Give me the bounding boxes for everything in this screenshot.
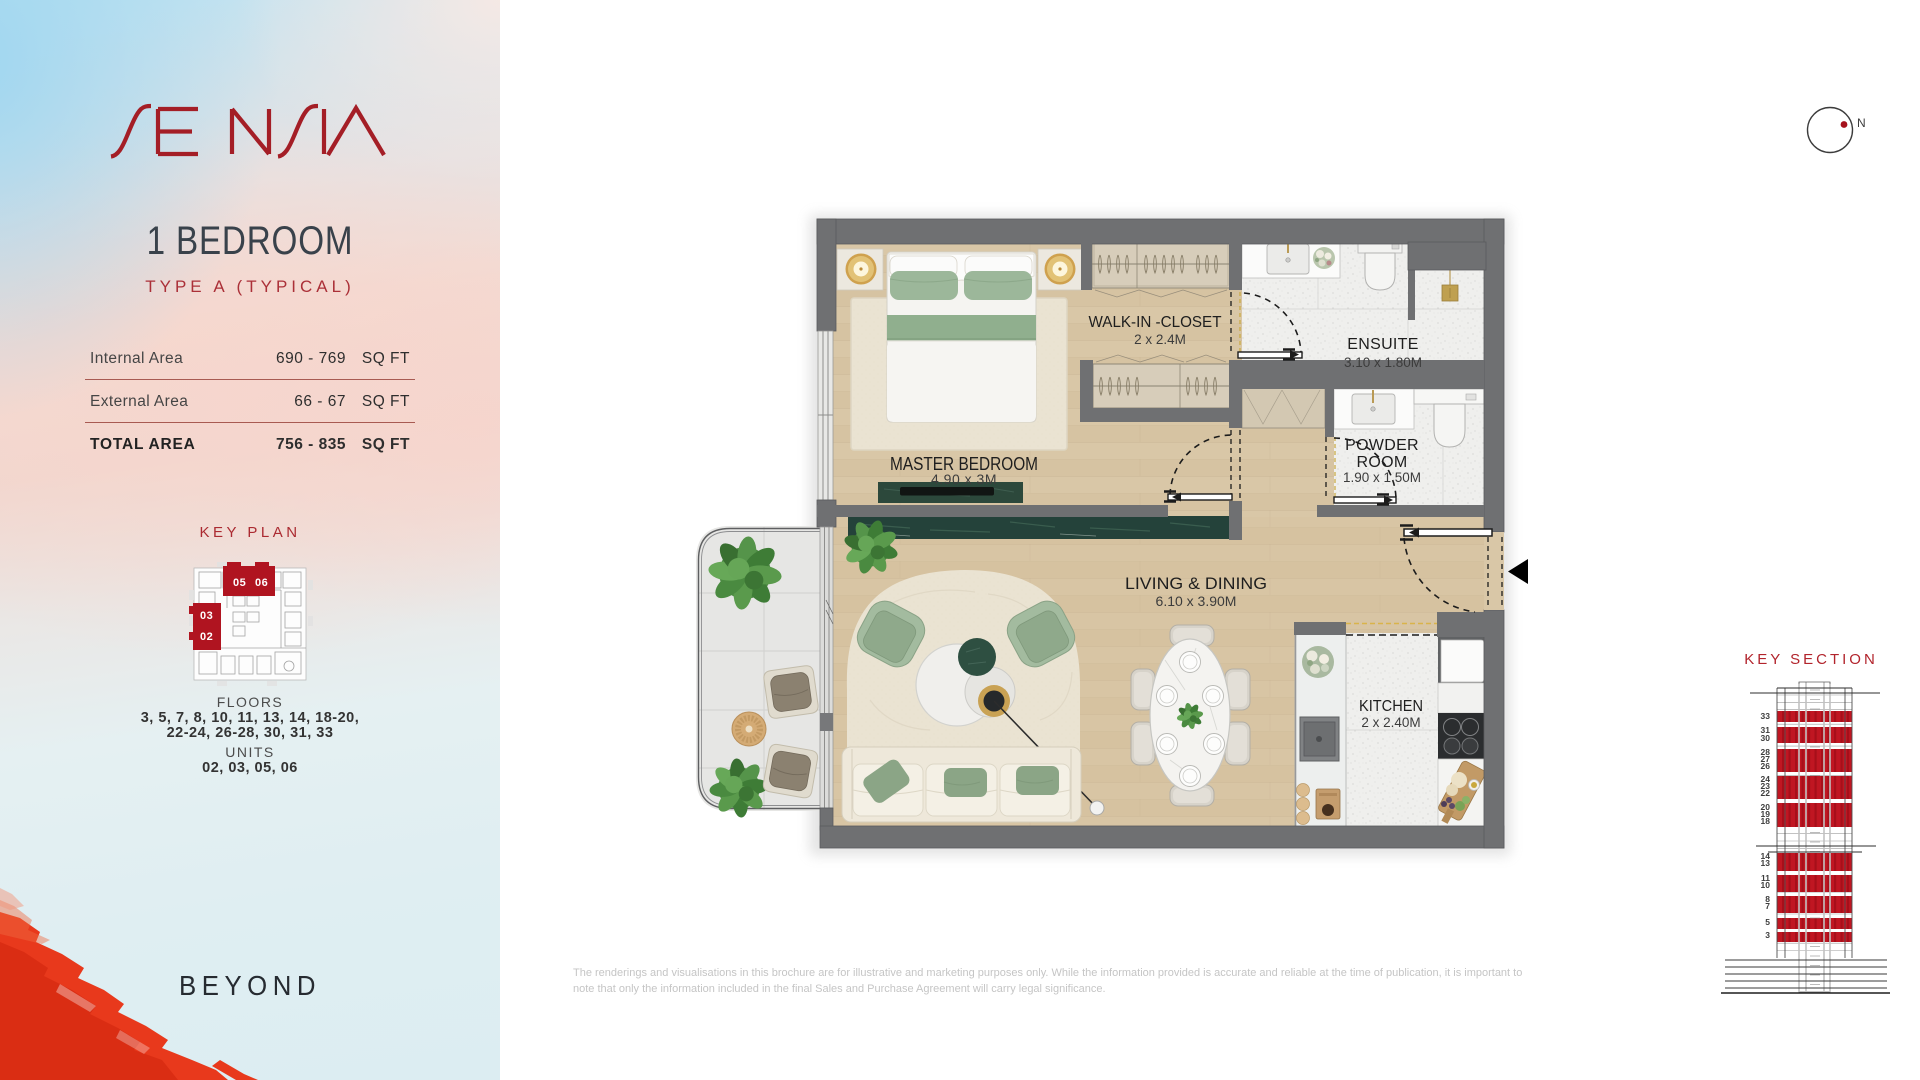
svg-text:6.10 x 3.90M: 6.10 x 3.90M — [1156, 593, 1237, 609]
svg-text:13: 13 — [1761, 858, 1771, 868]
svg-text:22: 22 — [1761, 788, 1771, 798]
svg-text:2 x 2.40M: 2 x 2.40M — [1361, 715, 1420, 730]
svg-text:3: 3 — [1765, 930, 1770, 940]
svg-text:ENSUITE: ENSUITE — [1347, 336, 1418, 353]
svg-text:06: 06 — [255, 577, 268, 589]
svg-text:18: 18 — [1761, 816, 1771, 826]
svg-text:10: 10 — [1761, 880, 1771, 890]
svg-text:2 x 2.4M: 2 x 2.4M — [1134, 332, 1186, 347]
svg-text:02: 02 — [200, 631, 213, 643]
svg-text:ROOM: ROOM — [1357, 454, 1408, 471]
svg-text:5: 5 — [1765, 917, 1770, 927]
svg-text:LIVING & DINING: LIVING & DINING — [1125, 574, 1267, 593]
svg-text:KITCHEN: KITCHEN — [1359, 698, 1423, 715]
svg-text:POWDER: POWDER — [1345, 437, 1419, 454]
svg-text:05: 05 — [233, 577, 246, 589]
svg-text:7: 7 — [1765, 901, 1770, 911]
svg-text:26: 26 — [1761, 761, 1771, 771]
svg-text:30: 30 — [1761, 733, 1771, 743]
svg-text:33: 33 — [1761, 711, 1771, 721]
svg-text:3.10 x 1.80M: 3.10 x 1.80M — [1344, 355, 1422, 370]
svg-text:03: 03 — [200, 610, 213, 622]
svg-text:4.90 x 3M: 4.90 x 3M — [931, 471, 997, 487]
svg-text:1.90 x 1.50M: 1.90 x 1.50M — [1343, 470, 1421, 485]
svg-text:WALK-IN -CLOSET: WALK-IN -CLOSET — [1089, 314, 1222, 331]
svg-text:N: N — [1857, 116, 1866, 130]
